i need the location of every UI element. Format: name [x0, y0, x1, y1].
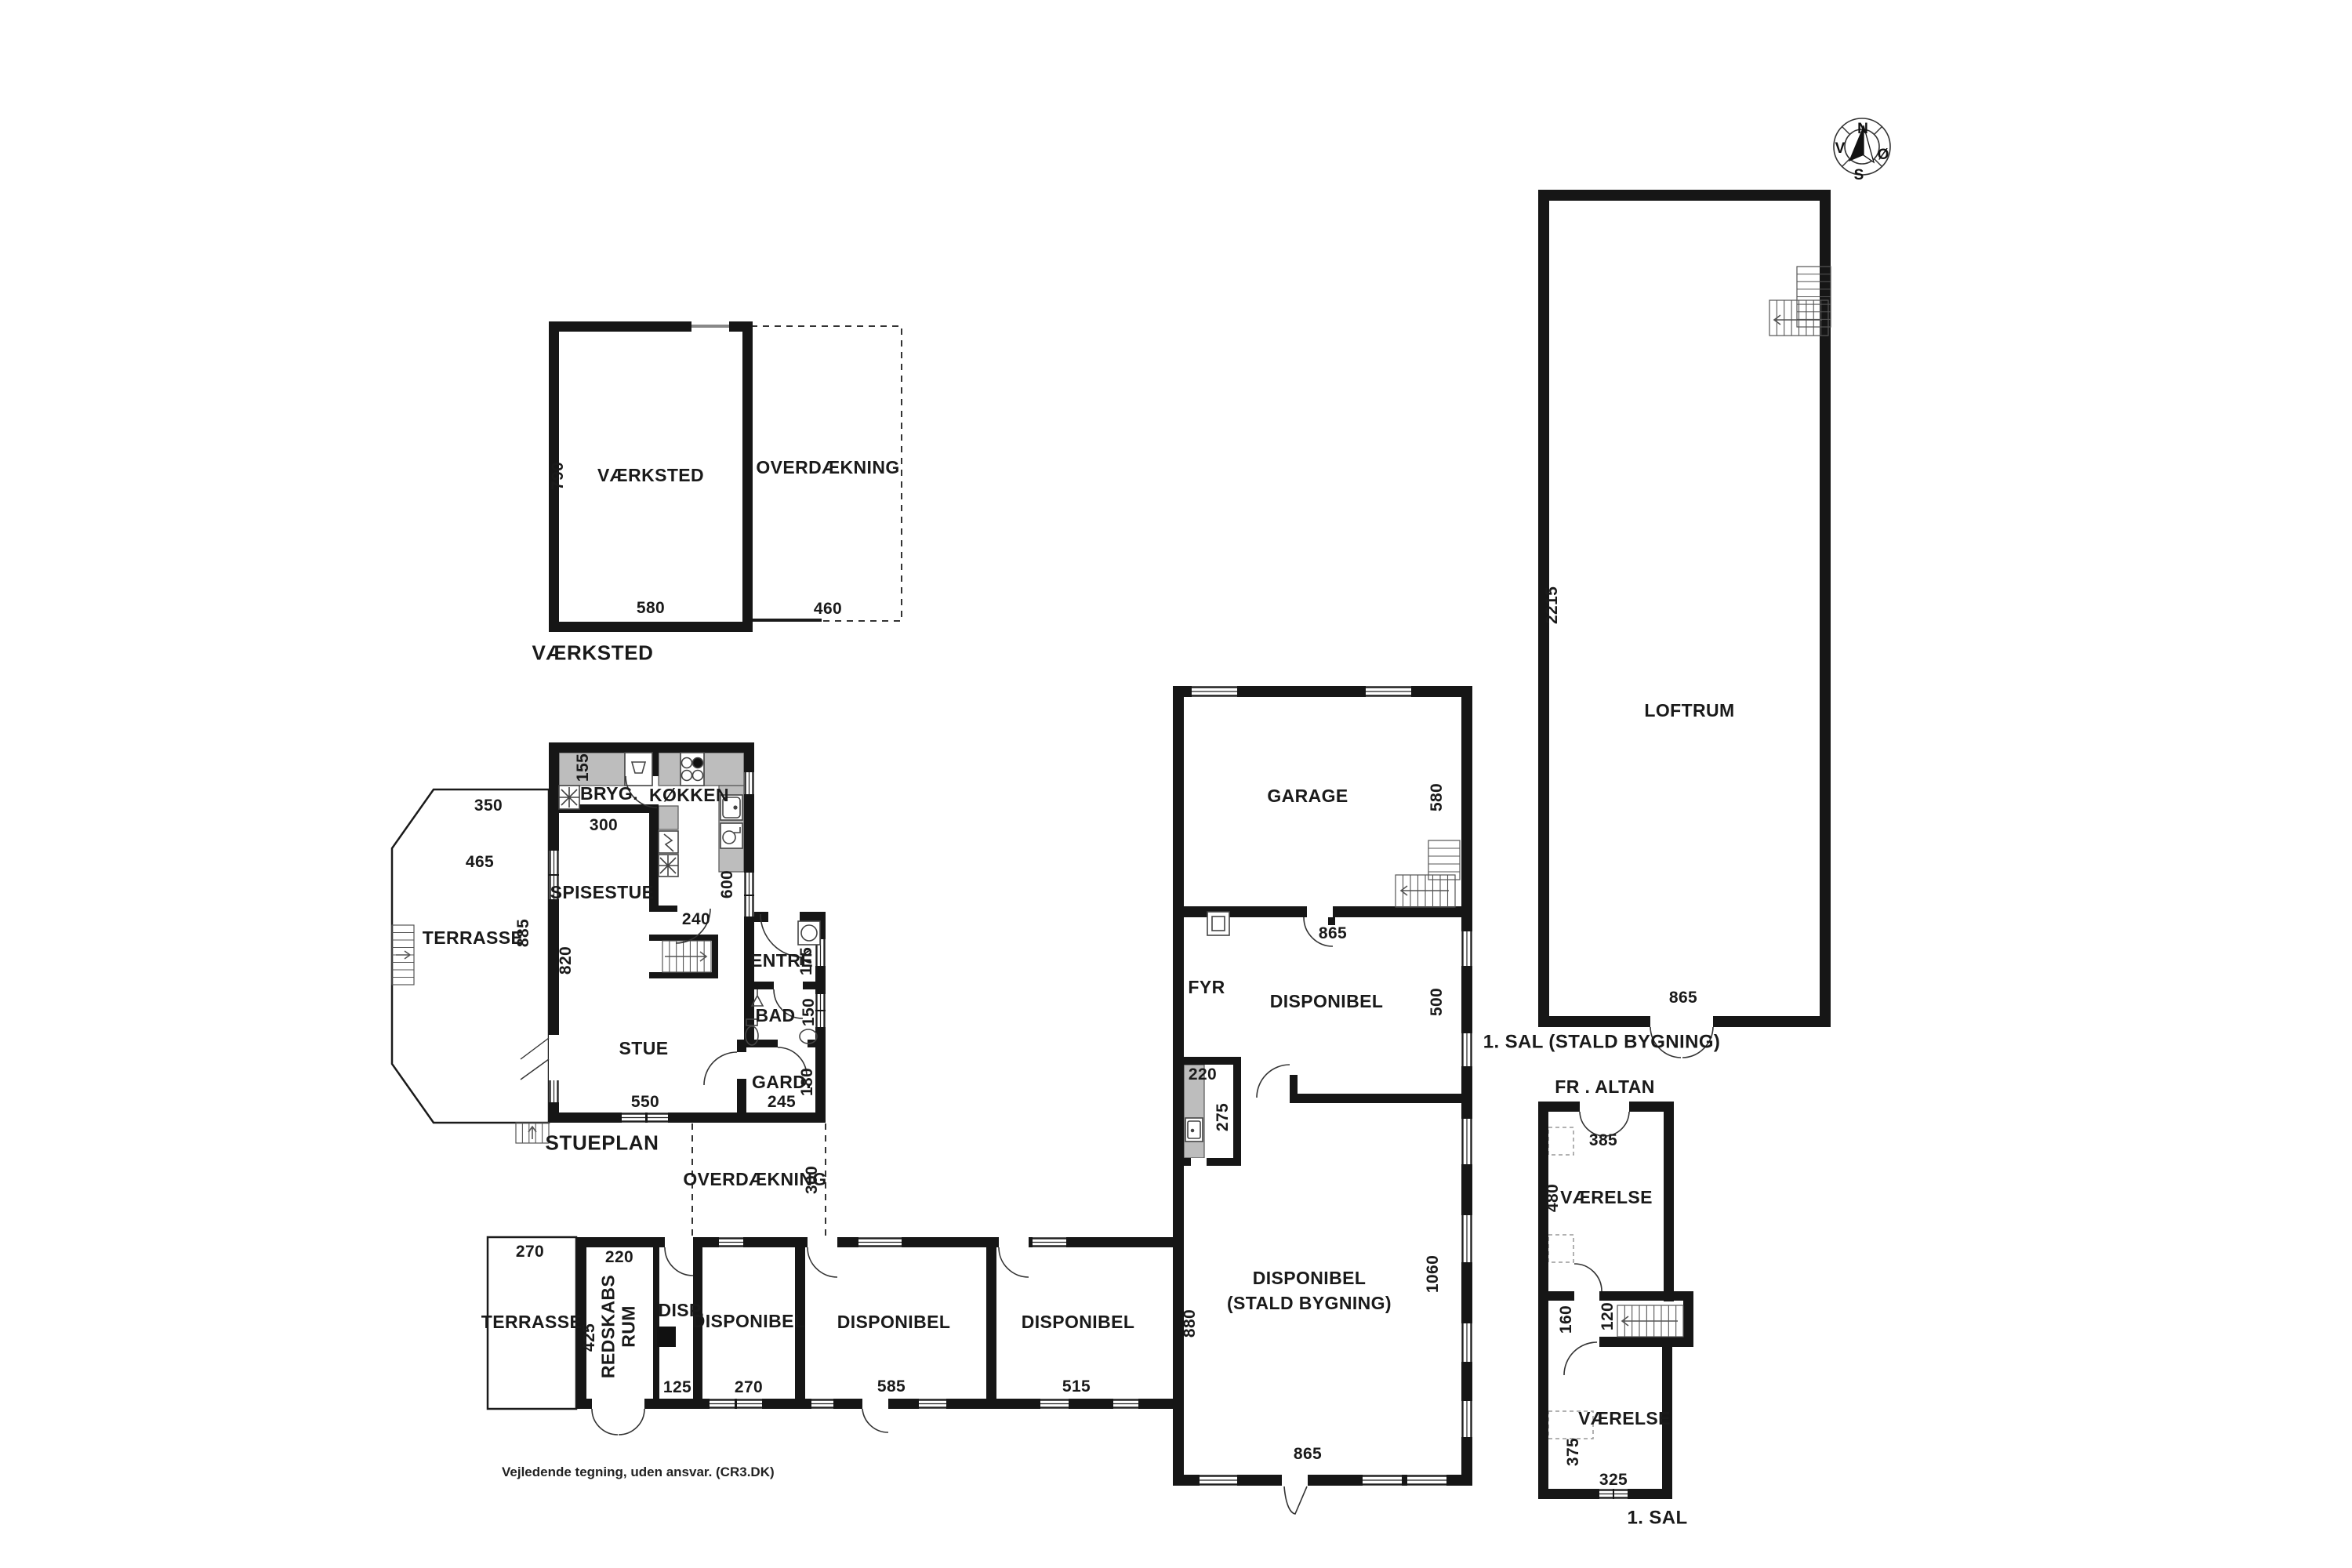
terrace-outline — [392, 789, 549, 1123]
compass: N V Ø S — [1834, 118, 1890, 183]
dim-2215: 2215 — [1543, 586, 1562, 624]
wall — [742, 321, 753, 632]
appliance-box — [681, 753, 704, 786]
dim-220: 220 — [605, 1248, 633, 1267]
dim-120: 120 — [1599, 1302, 1617, 1330]
counter — [659, 806, 678, 829]
appliance-box — [1207, 912, 1229, 935]
wall — [1207, 1158, 1241, 1166]
room-label-vaerelse-2: VÆRELSE — [1578, 1409, 1671, 1429]
dim-550: 550 — [631, 1093, 659, 1112]
wall — [649, 935, 718, 941]
appliance-box — [625, 753, 652, 786]
door-opening — [1580, 1102, 1629, 1112]
dim-175: 175 — [797, 947, 816, 975]
caption-1sal: 1. SAL — [1627, 1508, 1687, 1530]
room-label-fyr: FYR — [1188, 978, 1225, 998]
dim-465: 465 — [466, 853, 494, 872]
room-label-koekken: KØKKEN — [649, 786, 729, 806]
dim-865b: 865 — [1294, 1445, 1322, 1464]
dim-180: 180 — [798, 1068, 817, 1096]
door-arc — [1564, 1342, 1597, 1375]
dim-1060: 1060 — [1424, 1255, 1443, 1293]
door-arc — [999, 1247, 1029, 1277]
heatpump-icon — [559, 787, 579, 808]
wall — [803, 982, 826, 989]
dim-270: 270 — [516, 1243, 544, 1261]
heatpump-icon — [658, 855, 678, 876]
door-arc — [1284, 1486, 1307, 1514]
room-label-garage: GARAGE — [1267, 786, 1348, 807]
wall — [1173, 686, 1184, 1486]
dim-515: 515 — [1062, 1377, 1091, 1396]
chimney-blocks — [657, 1327, 676, 1347]
caption-fr-altan: FR . ALTAN — [1555, 1077, 1655, 1098]
door-opening — [768, 912, 800, 922]
wall — [1333, 906, 1472, 917]
door-opening — [808, 1237, 837, 1247]
dim-375: 375 — [1564, 1438, 1583, 1466]
dim-865a: 865 — [1319, 924, 1347, 943]
room-label-loftrum: LOFTRUM — [1644, 701, 1734, 721]
wall — [1548, 1291, 1574, 1301]
door-opening — [1307, 906, 1333, 917]
wall — [712, 935, 718, 978]
disclaimer-text: Vejledende tegning, uden ansvar. (CR3.DK… — [502, 1465, 775, 1480]
door-opening — [1191, 1158, 1207, 1166]
room-label-terrasse: TERRASSE — [423, 928, 523, 949]
door-arc — [1574, 1264, 1602, 1291]
dim-580b: 580 — [1428, 783, 1446, 811]
wall — [653, 1237, 659, 1409]
caption-stueplan: STUEPLAN — [546, 1131, 659, 1154]
door-arc — [1257, 1065, 1290, 1098]
plan-drawing: N V Ø S — [0, 0, 2352, 1568]
dim-220b: 220 — [1189, 1065, 1217, 1084]
room-label-vaerksted: VÆRKSTED — [597, 466, 704, 486]
stair-flight — [1428, 840, 1460, 880]
door-arc — [862, 1409, 888, 1432]
door-opening — [862, 1399, 888, 1409]
dim-125: 125 — [663, 1378, 691, 1397]
dim-160: 160 — [1557, 1305, 1576, 1334]
door-arc — [592, 1409, 618, 1435]
dim-460: 460 — [814, 600, 842, 619]
room-label-stald-hall-2: (STALD BYGNING) — [1227, 1294, 1392, 1314]
wall — [737, 1079, 746, 1123]
floor-plan: N V Ø S VÆRKSTED 790 580 OVERDÆKNING 460… — [0, 0, 2352, 1568]
wall — [1173, 1158, 1191, 1166]
room-label-disponibel-1: DISPONIBEL — [692, 1312, 806, 1332]
door-opening — [592, 1399, 644, 1409]
wall — [649, 972, 718, 978]
appliance-box — [720, 823, 742, 848]
room-label-stue: STUE — [619, 1039, 669, 1059]
dim-580: 580 — [637, 599, 665, 618]
wall — [549, 1112, 826, 1123]
dim-600: 600 — [718, 870, 737, 898]
wall — [737, 1040, 746, 1052]
sink-drain-icon — [1192, 1130, 1194, 1132]
room-label-disponibel-4: DISPONIBEL — [1270, 992, 1384, 1012]
door-opening — [999, 1237, 1029, 1247]
dim-245: 245 — [768, 1093, 796, 1112]
room-label-stald-hall-1: DISPONIBEL — [1253, 1269, 1367, 1289]
dim-865c: 865 — [1669, 989, 1697, 1007]
dim-150: 150 — [800, 998, 818, 1026]
room-label-bryg: BRYG. — [580, 784, 638, 804]
wall — [1173, 906, 1308, 917]
compass-n: N — [1857, 121, 1868, 137]
door-arc — [665, 1247, 693, 1276]
dim-790: 790 — [549, 462, 568, 490]
wall — [1461, 686, 1472, 1486]
wall — [1233, 1057, 1241, 1166]
dim-155: 155 — [574, 753, 593, 782]
dim-270b: 270 — [735, 1378, 763, 1397]
wall — [1599, 1337, 1686, 1347]
wall — [1298, 1094, 1472, 1103]
counter — [704, 753, 744, 786]
dim-275: 275 — [1214, 1103, 1232, 1131]
room-label-overdaekning: OVERDÆKNING — [756, 458, 899, 478]
wall — [1538, 190, 1831, 201]
dim-880: 880 — [1181, 1309, 1200, 1338]
room-label-vaerelse-1: VÆRELSE — [1560, 1188, 1653, 1208]
dim-300b: 300 — [803, 1166, 822, 1194]
wall — [649, 906, 677, 912]
wall — [744, 982, 774, 989]
dim-240: 240 — [682, 910, 710, 929]
wall — [1538, 1102, 1548, 1499]
compass-s: S — [1854, 167, 1864, 183]
door-opening — [549, 1035, 559, 1080]
door-arc — [704, 1052, 737, 1085]
door-opening — [665, 1237, 693, 1247]
wall — [1290, 1075, 1298, 1103]
room-label-bad: BAD — [755, 1006, 795, 1026]
room-label-terrasse-row: TERRASSE — [481, 1312, 582, 1333]
caption-vaerksted: VÆRKSTED — [532, 641, 653, 664]
room-label-disponibel-2: DISPONIBEL — [837, 1312, 951, 1333]
room-label-spisestue: SPISESTUE — [550, 883, 655, 903]
door-opening — [1650, 1016, 1713, 1027]
dim-500: 500 — [1428, 988, 1446, 1016]
redskabsrum-line1: REDSKABS — [597, 1275, 618, 1378]
sloped-ceiling-dashes — [1548, 1127, 1593, 1439]
wall — [744, 742, 754, 922]
dim-300: 300 — [590, 816, 618, 835]
door-opening — [1282, 1475, 1308, 1486]
counter — [659, 753, 681, 786]
dim-385: 385 — [1589, 1131, 1617, 1150]
dim-820: 820 — [557, 946, 575, 975]
wall — [1599, 1291, 1686, 1301]
dim-425: 425 — [580, 1323, 599, 1352]
caption-1sal-stald: 1. SAL (STALD BYGNING) — [1483, 1033, 1721, 1054]
wall — [549, 321, 691, 332]
room-label-redskabsrum: REDSKABSRUM — [598, 1275, 639, 1378]
wall — [1173, 1057, 1241, 1065]
room-label-disponibel-3: DISPONIBEL — [1022, 1312, 1135, 1333]
wall — [986, 1237, 996, 1409]
wall — [549, 622, 753, 632]
compass-o: Ø — [1878, 147, 1889, 163]
dim-885: 885 — [514, 919, 533, 947]
redskabsrum-line2: RUM — [618, 1305, 638, 1348]
dim-350: 350 — [474, 797, 503, 815]
dim-585: 585 — [877, 1377, 906, 1396]
sink-drain-icon — [734, 806, 737, 809]
chimney-block — [657, 1327, 676, 1347]
wall — [1664, 1102, 1674, 1301]
dim-325: 325 — [1599, 1471, 1628, 1490]
burner-icon — [693, 758, 703, 768]
door-arc — [808, 1247, 837, 1277]
door-arc — [619, 1409, 644, 1435]
compass-v: V — [1835, 140, 1846, 157]
